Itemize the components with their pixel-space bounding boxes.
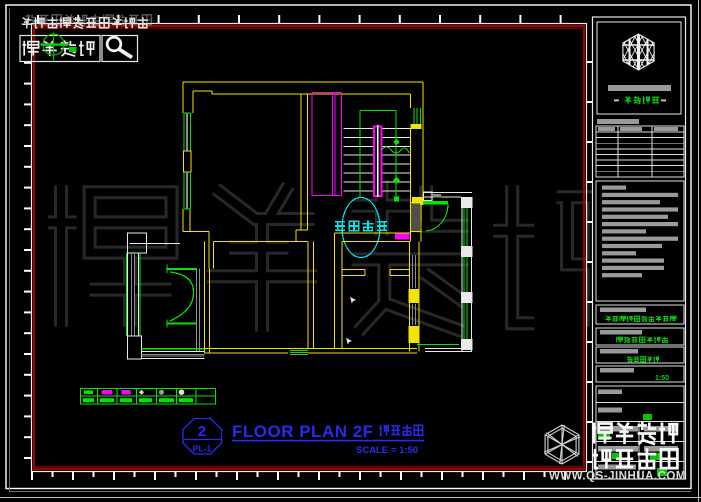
svg-text:2: 2	[198, 423, 206, 440]
svg-text:PL-1: PL-1	[193, 444, 212, 454]
svg-text:WWW.QS-JINHUA.COM: WWW.QS-JINHUA.COM	[549, 471, 686, 483]
svg-text:1:50: 1:50	[655, 375, 669, 382]
svg-text:SCALE = 1:50: SCALE = 1:50	[356, 445, 418, 456]
svg-text:FLOOR PLAN 2F: FLOOR PLAN 2F	[232, 422, 374, 441]
